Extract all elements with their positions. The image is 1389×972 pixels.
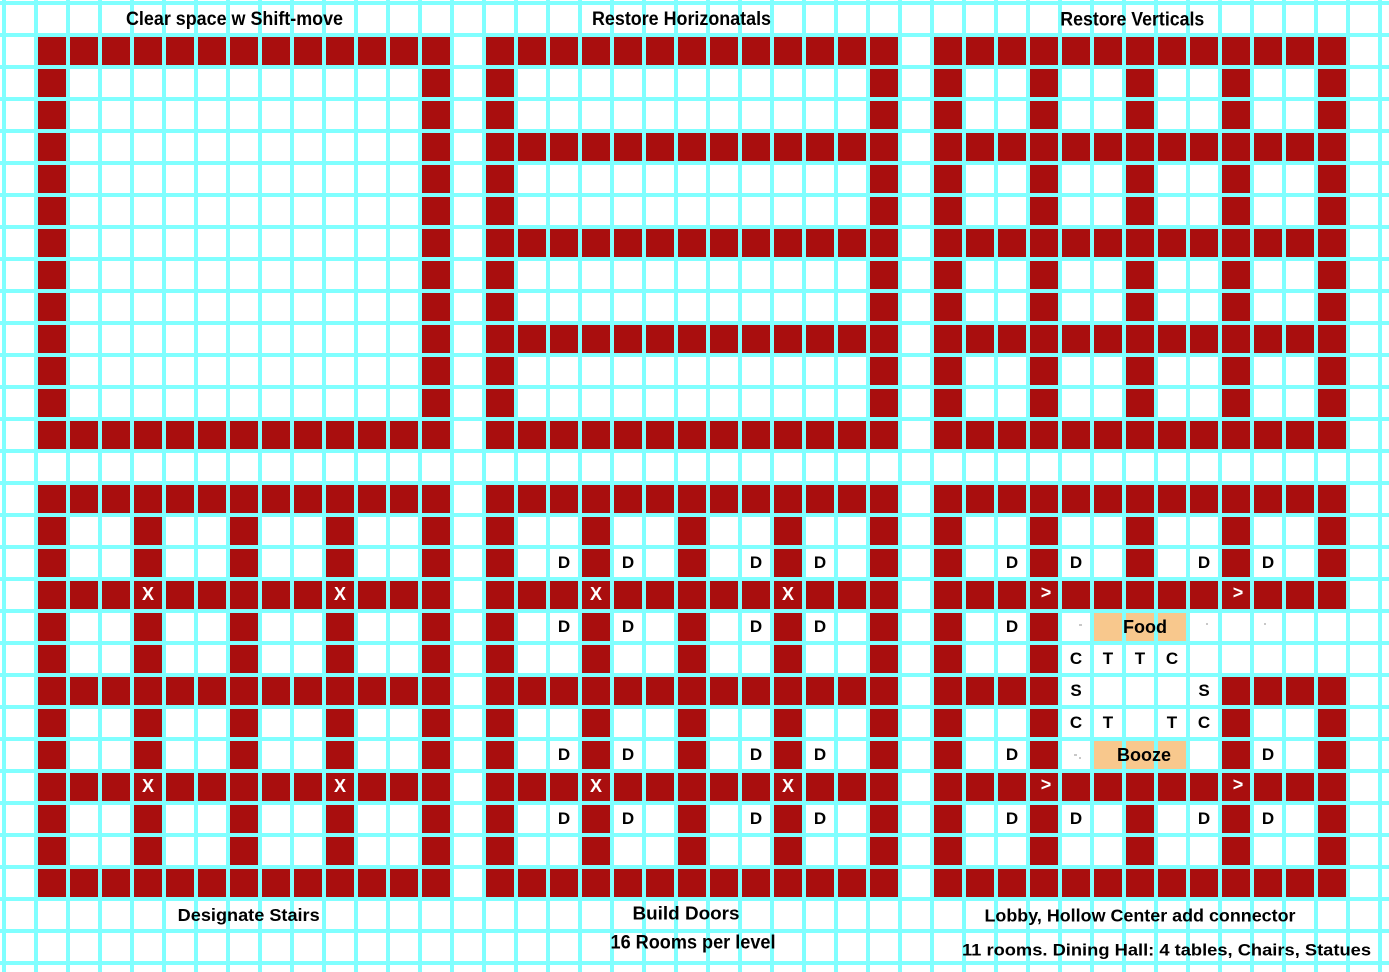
svg-text:D: D xyxy=(1262,745,1274,764)
svg-text:D: D xyxy=(622,553,634,572)
svg-text:C: C xyxy=(1070,649,1082,668)
svg-text:D: D xyxy=(814,809,826,828)
svg-text:X: X xyxy=(590,776,602,796)
svg-text:X: X xyxy=(142,776,154,796)
svg-text:X: X xyxy=(142,584,154,604)
svg-text:X: X xyxy=(782,584,794,604)
svg-text:D: D xyxy=(558,553,570,572)
svg-text:X: X xyxy=(334,584,346,604)
svg-text:S: S xyxy=(1070,681,1081,700)
svg-text:T: T xyxy=(1167,713,1178,732)
svg-text:Restore Horizonatals: Restore Horizonatals xyxy=(592,9,771,30)
svg-text:D: D xyxy=(750,617,762,636)
svg-text:X: X xyxy=(334,776,346,796)
svg-text:D: D xyxy=(814,745,826,764)
svg-text:T: T xyxy=(1103,649,1114,668)
svg-text:D: D xyxy=(558,745,570,764)
svg-text:D: D xyxy=(1006,809,1018,828)
svg-text:Food: Food xyxy=(1123,617,1167,637)
svg-text:>: > xyxy=(1041,775,1052,795)
svg-text:Restore Verticals: Restore Verticals xyxy=(1060,10,1204,31)
svg-text:Booze: Booze xyxy=(1117,745,1171,765)
svg-text:X: X xyxy=(590,584,602,604)
svg-text:Designate Stairs: Designate Stairs xyxy=(178,905,320,925)
svg-text:Clear space w Shift-move: Clear space w Shift-move xyxy=(126,8,343,30)
svg-text:D: D xyxy=(750,809,762,828)
svg-text:D: D xyxy=(814,553,826,572)
svg-text:Lobby, Hollow Center add conne: Lobby, Hollow Center add connector xyxy=(985,906,1296,926)
svg-text:C: C xyxy=(1166,649,1178,668)
svg-text:16 Rooms per level: 16 Rooms per level xyxy=(611,933,776,954)
svg-text:D: D xyxy=(622,809,634,828)
svg-text:D: D xyxy=(558,617,570,636)
svg-text:11 rooms. Dining Hall: 4 table: 11 rooms. Dining Hall: 4 tables, Chairs,… xyxy=(962,941,1371,960)
svg-text:D: D xyxy=(622,617,634,636)
svg-text:D: D xyxy=(1006,553,1018,572)
svg-text:D: D xyxy=(750,745,762,764)
svg-text:D: D xyxy=(1198,809,1210,828)
svg-text:D: D xyxy=(1070,809,1082,828)
svg-text:C: C xyxy=(1070,713,1082,732)
svg-text:D: D xyxy=(1006,745,1018,764)
svg-text:>: > xyxy=(1233,775,1244,795)
svg-text:D: D xyxy=(622,745,634,764)
svg-text:D: D xyxy=(750,553,762,572)
svg-text:>: > xyxy=(1233,583,1244,603)
svg-text:D: D xyxy=(1006,617,1018,636)
svg-text:D: D xyxy=(814,617,826,636)
svg-text:D: D xyxy=(1198,553,1210,572)
svg-text:C: C xyxy=(1198,713,1210,732)
svg-text:>: > xyxy=(1041,583,1052,603)
svg-text:T: T xyxy=(1103,713,1114,732)
svg-text:S: S xyxy=(1198,681,1209,700)
svg-text:D: D xyxy=(1262,809,1274,828)
svg-text:T: T xyxy=(1135,649,1146,668)
svg-text:D: D xyxy=(1262,553,1274,572)
svg-text:D: D xyxy=(1070,553,1082,572)
svg-text:X: X xyxy=(782,776,794,796)
svg-text:D: D xyxy=(558,809,570,828)
svg-text:Build Doors: Build Doors xyxy=(633,904,740,924)
